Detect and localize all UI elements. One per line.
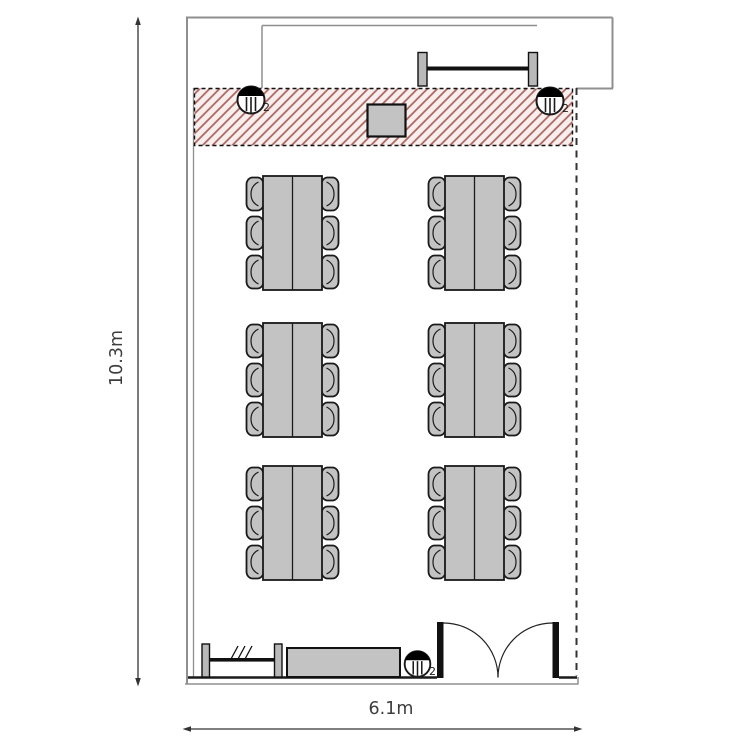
dimension-width: 6.1m — [183, 699, 583, 732]
projector-stand — [368, 105, 406, 137]
radiator — [202, 644, 282, 677]
door-post-left — [437, 622, 444, 678]
table-group-3 — [247, 323, 339, 437]
table-group-1 — [247, 176, 339, 290]
socket-count-label: 2 — [562, 102, 569, 115]
table-group-6 — [429, 466, 521, 580]
dimension-height: 10.3m — [107, 17, 141, 687]
whiteboard — [418, 53, 538, 87]
socket-icon-bottom — [405, 651, 431, 677]
socket-count-label: 2 — [429, 665, 436, 678]
arrow-left-icon — [183, 726, 192, 732]
door-swing-arc-left — [444, 623, 499, 678]
double-door — [437, 622, 559, 678]
table-group-2 — [429, 176, 521, 290]
room-width-label: 6.1m — [369, 699, 414, 719]
whiteboard-bracket-left — [418, 53, 427, 87]
arrow-right-icon — [574, 726, 583, 732]
table-group-4 — [429, 323, 521, 437]
socket-icon-top-right — [537, 87, 564, 114]
socket-icon-top-left — [238, 86, 265, 113]
socket-count-label: 2 — [263, 101, 270, 114]
arrow-up-icon — [135, 17, 141, 26]
sideboard — [287, 648, 400, 677]
door-swing-arc-right — [498, 623, 553, 678]
radiator-vent-marks — [231, 646, 252, 659]
whiteboard-bracket-right — [529, 53, 538, 87]
door-post-right — [553, 622, 560, 678]
floor-plan-canvas: 2 2 2 10.3m 6.1m — [0, 0, 750, 750]
arrow-down-icon — [135, 678, 141, 687]
table-group-5 — [247, 466, 339, 580]
room-height-label: 10.3m — [107, 330, 127, 386]
